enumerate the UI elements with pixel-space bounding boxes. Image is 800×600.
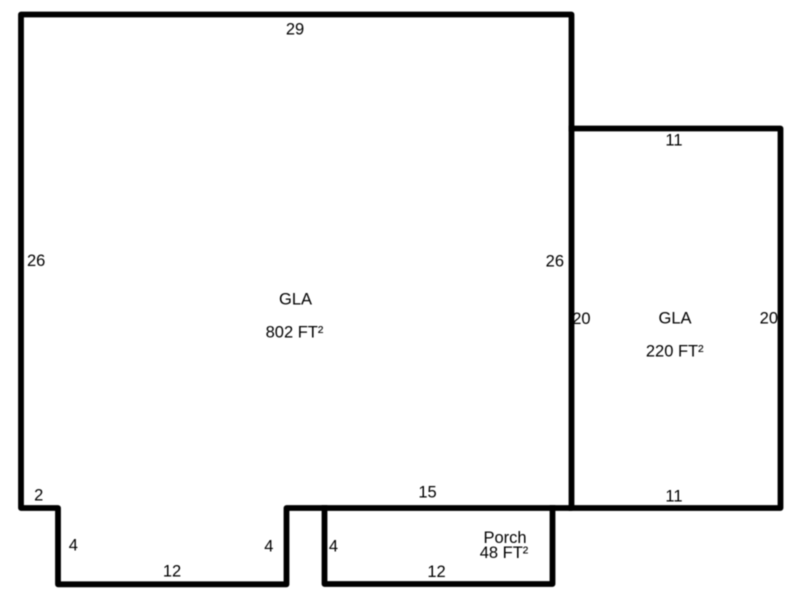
svg-text:29: 29 bbox=[286, 21, 304, 39]
svg-text:12: 12 bbox=[427, 563, 445, 581]
svg-text:GLA: GLA bbox=[279, 290, 312, 308]
svg-text:4: 4 bbox=[69, 537, 78, 555]
svg-text:11: 11 bbox=[665, 488, 682, 506]
svg-text:2: 2 bbox=[34, 487, 43, 505]
svg-text:GLA: GLA bbox=[658, 310, 691, 328]
svg-text:4: 4 bbox=[329, 538, 338, 556]
svg-text:26: 26 bbox=[27, 252, 45, 270]
svg-text:15: 15 bbox=[418, 484, 436, 502]
svg-text:48 FT²: 48 FT² bbox=[480, 544, 529, 562]
svg-text:220 FT²: 220 FT² bbox=[646, 343, 704, 361]
svg-text:20: 20 bbox=[572, 310, 590, 328]
svg-text:20: 20 bbox=[760, 310, 778, 328]
svg-text:802 FT²: 802 FT² bbox=[266, 323, 324, 341]
svg-text:26: 26 bbox=[546, 253, 564, 271]
svg-text:11: 11 bbox=[665, 132, 682, 150]
svg-text:12: 12 bbox=[163, 563, 181, 581]
svg-text:4: 4 bbox=[264, 538, 273, 556]
